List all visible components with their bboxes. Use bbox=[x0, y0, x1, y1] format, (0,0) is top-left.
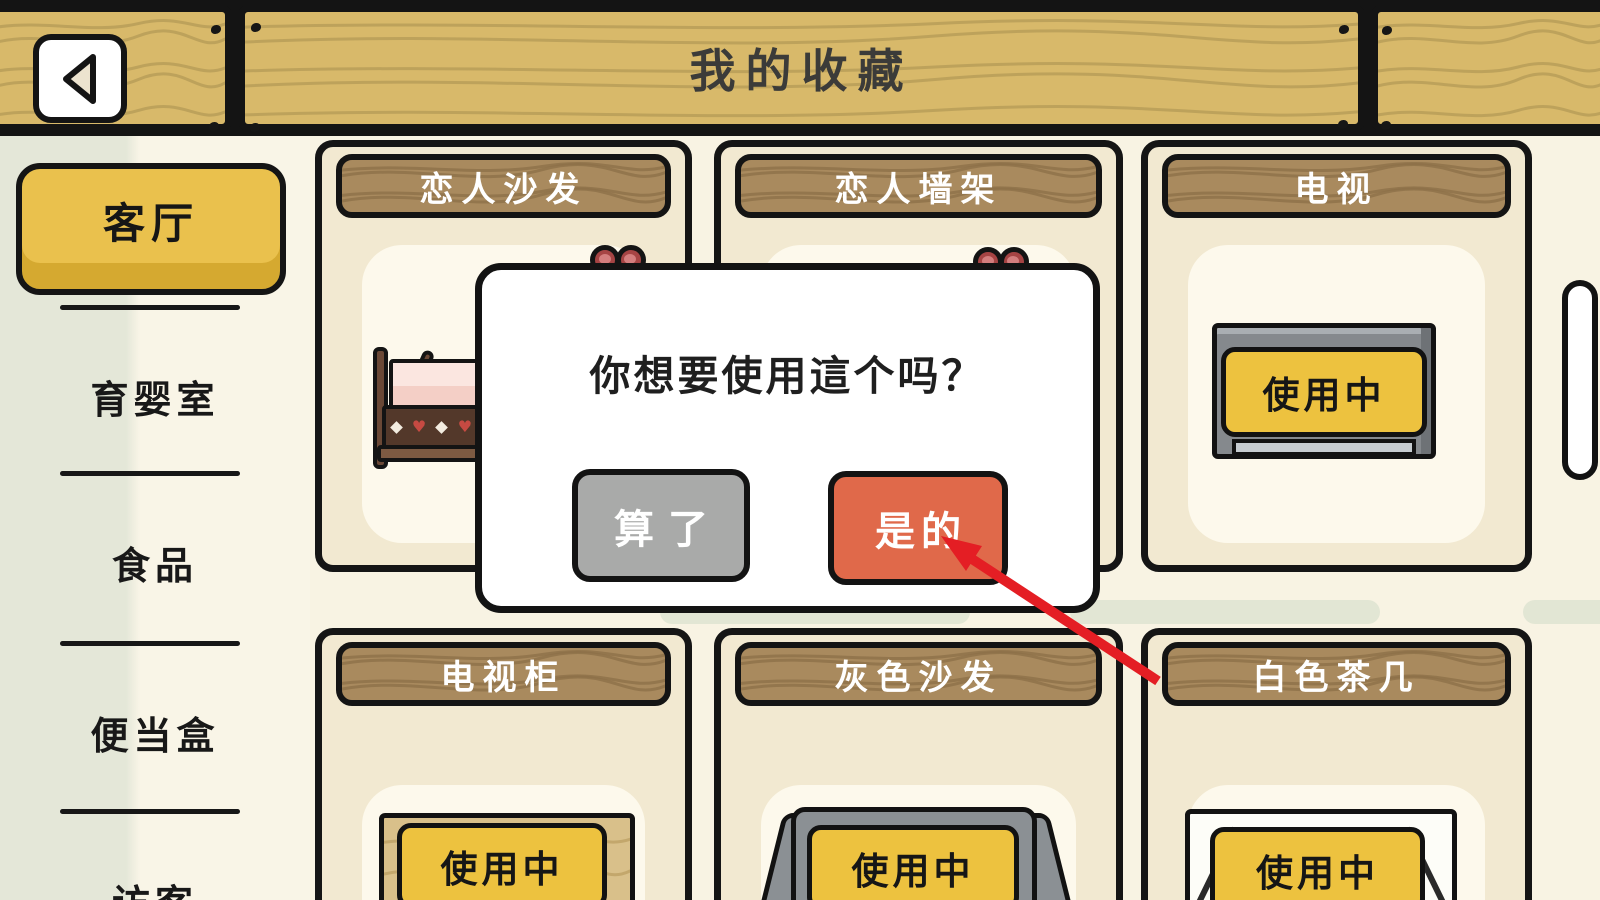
card-title: 恋人墙架 bbox=[835, 162, 1003, 211]
card-title: 白色茶几 bbox=[1253, 650, 1421, 699]
sidebar-item-nursery[interactable]: 育婴室 bbox=[0, 372, 310, 420]
sidebar: 客厅 育婴室 食品 便当盒 访客 bbox=[0, 136, 310, 900]
sidebar-item-visitors[interactable]: 访客 bbox=[0, 876, 310, 900]
top-bar: 我的收藏 bbox=[0, 0, 1600, 136]
carving-heart: ♥ bbox=[458, 419, 472, 435]
card-title: 灰色沙发 bbox=[835, 650, 1003, 699]
collection-card-white-table[interactable]: 白色茶几 使用中 bbox=[1141, 628, 1532, 900]
in-use-badge: 使用中 bbox=[1210, 827, 1425, 900]
sidebar-item-label: 便当盒 bbox=[90, 705, 219, 760]
in-use-label: 使用中 bbox=[852, 841, 975, 895]
carving-dot bbox=[390, 421, 403, 434]
in-use-label: 使用中 bbox=[1263, 365, 1386, 419]
sidebar-divider bbox=[60, 305, 240, 310]
use-item-dialog: 你想要使用這个吗？ 算了 是的 bbox=[475, 263, 1100, 613]
sidebar-divider bbox=[60, 641, 240, 646]
card-title-plaque: 电视 bbox=[1162, 154, 1511, 218]
topbar-left-panel bbox=[0, 5, 232, 131]
in-use-badge: 使用中 bbox=[397, 823, 607, 900]
tv-base-strip bbox=[1232, 439, 1416, 456]
sidebar-item-label: 食品 bbox=[112, 535, 198, 590]
card-title: 电视 bbox=[1295, 162, 1379, 211]
card-title-plaque: 灰色沙发 bbox=[735, 642, 1102, 706]
card-title: 电视柜 bbox=[441, 650, 567, 699]
sidebar-item-label: 访客 bbox=[112, 873, 198, 900]
scrollbar-thumb[interactable] bbox=[1562, 280, 1598, 480]
back-button[interactable] bbox=[33, 34, 127, 123]
card-title: 恋人沙发 bbox=[420, 162, 588, 211]
sidebar-item-label: 育婴室 bbox=[90, 369, 219, 424]
sidebar-divider bbox=[60, 809, 240, 814]
card-title-plaque: 电视柜 bbox=[336, 642, 671, 706]
in-use-badge: 使用中 bbox=[1221, 347, 1427, 437]
collection-card-tv-cabinet[interactable]: 电视柜 使用中 bbox=[315, 628, 692, 900]
in-use-label: 使用中 bbox=[441, 839, 564, 893]
cancel-button[interactable]: 算了 bbox=[572, 469, 750, 582]
collection-card-gray-sofa[interactable]: 灰色沙发 使用中 bbox=[714, 628, 1123, 900]
screen: 恋人沙发 ♥ ♥ bbox=[0, 0, 1600, 900]
card-title-plaque: 恋人墙架 bbox=[735, 154, 1102, 218]
dialog-message: 你想要使用這个吗？ bbox=[482, 342, 1093, 402]
collection-card-tv[interactable]: 电视 使用中 bbox=[1141, 140, 1532, 572]
wood-grain-texture bbox=[1378, 12, 1600, 124]
in-use-label: 使用中 bbox=[1256, 843, 1379, 897]
sidebar-item-label: 客厅 bbox=[103, 190, 199, 251]
carving-heart: ♥ bbox=[412, 419, 426, 435]
sidebar-divider bbox=[60, 471, 240, 476]
sidebar-item-bento-box[interactable]: 便当盒 bbox=[0, 708, 310, 756]
sidebar-item-living-room[interactable]: 客厅 bbox=[16, 163, 286, 295]
card-title-plaque: 白色茶几 bbox=[1162, 642, 1511, 706]
card-title-plaque: 恋人沙发 bbox=[336, 154, 671, 218]
topbar-right-panel bbox=[1371, 5, 1600, 131]
back-arrow-icon bbox=[57, 50, 103, 108]
topbar-title-panel: 我的收藏 bbox=[238, 5, 1365, 131]
page-title: 我的收藏 bbox=[245, 12, 1358, 124]
carving-dot bbox=[436, 421, 449, 434]
sidebar-item-food[interactable]: 食品 bbox=[0, 538, 310, 586]
in-use-badge: 使用中 bbox=[807, 825, 1019, 900]
confirm-button[interactable]: 是的 bbox=[828, 471, 1008, 585]
